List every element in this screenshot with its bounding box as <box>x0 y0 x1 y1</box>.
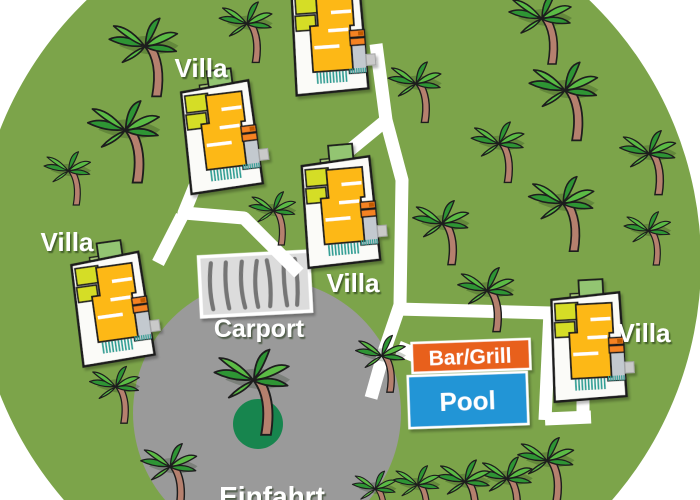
roundabout-island <box>233 399 283 449</box>
walkway-pool-side <box>545 311 550 420</box>
villa-label-northwest: Villa <box>174 53 228 83</box>
villa-label-center: Villa <box>326 268 380 298</box>
villa-label-east: Villa <box>617 318 671 348</box>
map-canvas: Bar/Grill Pool Villa Villa Villa <box>0 0 700 500</box>
pool-label: Pool <box>439 385 496 417</box>
walkway-east <box>396 309 551 313</box>
resort-site-map: Bar/Grill Pool Villa Villa Villa <box>0 0 700 500</box>
villa-label-west: Villa <box>40 227 94 257</box>
bar-grill-label: Bar/Grill <box>428 345 512 371</box>
carport-label: Carport <box>214 315 305 343</box>
amenity-signs: Bar/Grill Pool <box>407 339 533 428</box>
einfahrt-label: Einfahrt <box>219 481 325 500</box>
